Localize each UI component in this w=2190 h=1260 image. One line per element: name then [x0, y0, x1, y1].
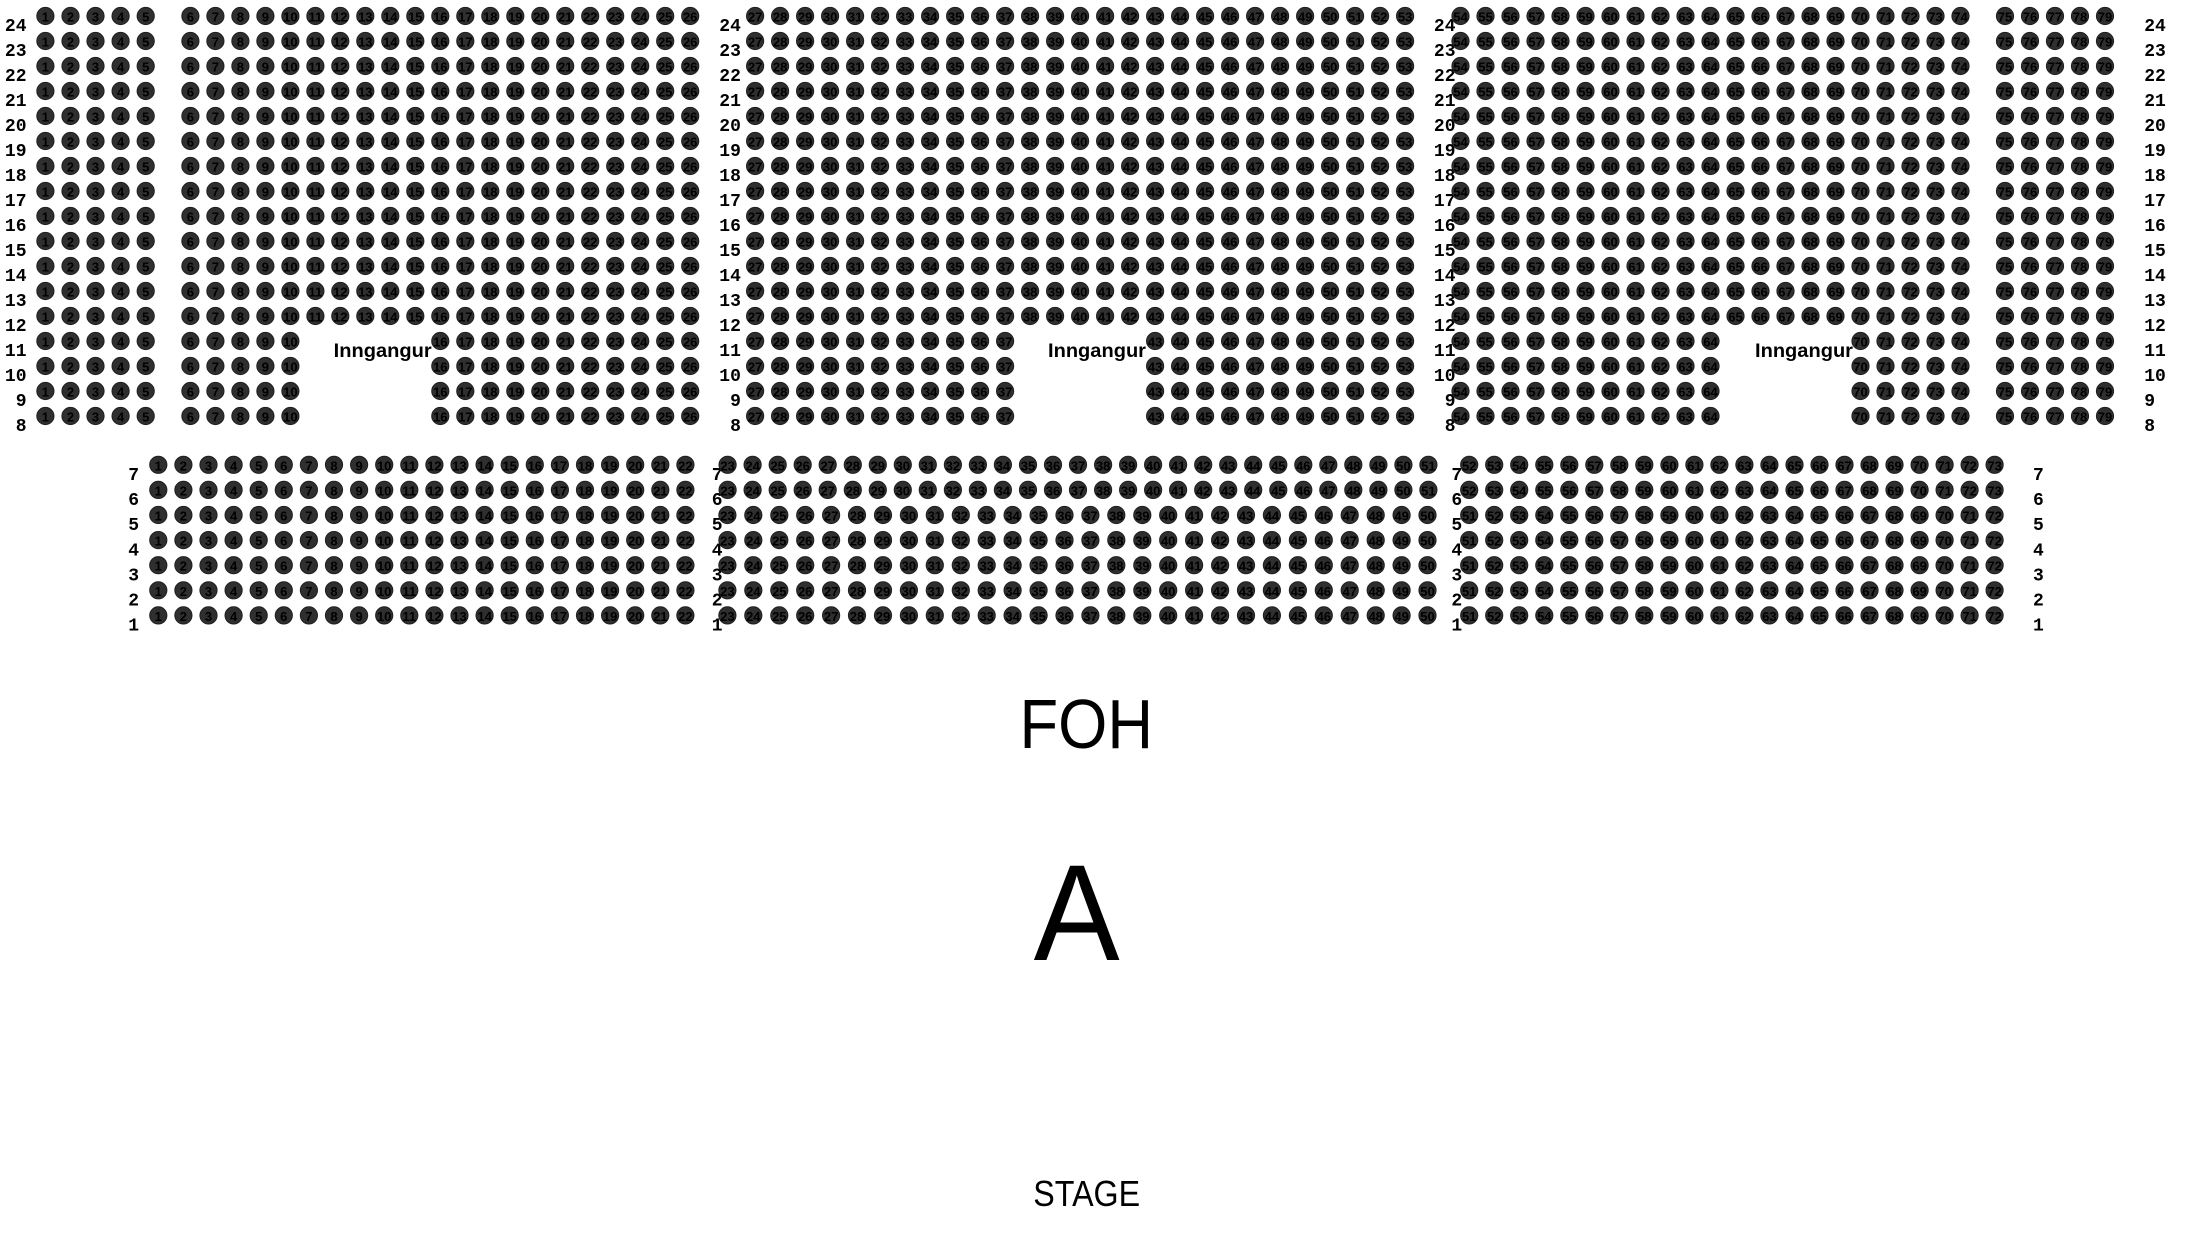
svg-text:3: 3	[92, 210, 99, 225]
svg-text:78: 78	[2073, 260, 2087, 275]
svg-text:33: 33	[971, 483, 985, 498]
svg-text:1: 1	[155, 509, 162, 524]
svg-text:25: 25	[658, 360, 672, 375]
svg-text:70: 70	[1853, 235, 1867, 250]
svg-text:71: 71	[1878, 385, 1892, 400]
svg-text:78: 78	[2073, 35, 2087, 50]
svg-text:6: 6	[280, 458, 287, 473]
svg-text:38: 38	[1023, 60, 1037, 75]
svg-text:17: 17	[458, 260, 472, 275]
svg-text:62: 62	[1653, 385, 1667, 400]
svg-text:51: 51	[1421, 458, 1435, 473]
svg-text:45: 45	[1198, 135, 1212, 150]
svg-text:72: 72	[1962, 483, 1976, 498]
svg-text:31: 31	[848, 235, 862, 250]
svg-text:15: 15	[502, 559, 516, 574]
svg-text:25: 25	[772, 584, 786, 599]
svg-text:20: 20	[533, 35, 547, 50]
svg-text:12: 12	[427, 483, 441, 498]
svg-text:31: 31	[928, 509, 942, 524]
svg-text:67: 67	[1837, 458, 1851, 473]
svg-text:28: 28	[773, 235, 787, 250]
svg-text:54: 54	[1453, 185, 1468, 200]
svg-text:13: 13	[358, 260, 372, 275]
svg-text:12: 12	[333, 185, 347, 200]
svg-text:56: 56	[1503, 160, 1517, 175]
svg-text:79: 79	[2098, 285, 2112, 300]
svg-text:14: 14	[477, 559, 492, 574]
svg-text:60: 60	[1687, 609, 1701, 624]
svg-text:6: 6	[187, 85, 194, 100]
svg-text:48: 48	[1273, 310, 1287, 325]
svg-text:30: 30	[823, 10, 837, 25]
svg-text:41: 41	[1098, 85, 1112, 100]
svg-text:72: 72	[1903, 335, 1917, 350]
svg-text:75: 75	[1998, 60, 2012, 75]
svg-text:40: 40	[1161, 559, 1175, 574]
svg-text:51: 51	[1348, 410, 1362, 425]
svg-text:76: 76	[2023, 10, 2037, 25]
svg-text:28: 28	[773, 110, 787, 125]
svg-text:37: 37	[998, 360, 1012, 375]
svg-text:47: 47	[1248, 10, 1262, 25]
svg-text:64: 64	[1787, 609, 1802, 624]
svg-text:54: 54	[1453, 360, 1468, 375]
svg-text:45: 45	[1198, 335, 1212, 350]
svg-text:59: 59	[1578, 10, 1592, 25]
svg-text:43: 43	[1148, 360, 1162, 375]
svg-text:13: 13	[452, 559, 466, 574]
svg-text:38: 38	[1023, 35, 1037, 50]
svg-text:3: 3	[92, 260, 99, 275]
svg-text:5: 5	[128, 516, 139, 536]
svg-text:62: 62	[1653, 185, 1667, 200]
svg-text:53: 53	[1512, 584, 1526, 599]
svg-text:60: 60	[1603, 385, 1617, 400]
svg-text:75: 75	[1998, 285, 2012, 300]
svg-text:59: 59	[1578, 210, 1592, 225]
svg-text:15: 15	[408, 235, 422, 250]
svg-text:67: 67	[1778, 35, 1792, 50]
svg-text:7: 7	[212, 135, 219, 150]
svg-text:22: 22	[583, 85, 597, 100]
svg-text:66: 66	[1753, 60, 1767, 75]
svg-text:2: 2	[67, 335, 74, 350]
svg-text:64: 64	[1787, 584, 1802, 599]
svg-text:60: 60	[1603, 260, 1617, 275]
svg-text:24: 24	[745, 458, 760, 473]
svg-text:62: 62	[1653, 310, 1667, 325]
svg-text:70: 70	[1912, 458, 1926, 473]
svg-text:40: 40	[1073, 185, 1087, 200]
svg-text:52: 52	[1487, 609, 1501, 624]
svg-text:72: 72	[1903, 310, 1917, 325]
svg-text:55: 55	[1478, 310, 1492, 325]
svg-text:63: 63	[1678, 310, 1692, 325]
svg-text:37: 37	[998, 210, 1012, 225]
svg-text:16: 16	[719, 217, 741, 237]
svg-text:73: 73	[1987, 483, 2001, 498]
svg-text:46: 46	[1223, 360, 1237, 375]
svg-text:21: 21	[558, 85, 572, 100]
svg-text:68: 68	[1887, 609, 1901, 624]
svg-text:18: 18	[578, 534, 592, 549]
svg-text:5: 5	[142, 235, 149, 250]
svg-text:76: 76	[2023, 410, 2037, 425]
svg-text:50: 50	[1323, 260, 1337, 275]
svg-text:20: 20	[533, 310, 547, 325]
svg-text:68: 68	[1803, 10, 1817, 25]
svg-text:59: 59	[1578, 110, 1592, 125]
svg-text:20: 20	[533, 335, 547, 350]
svg-text:4: 4	[117, 60, 125, 75]
svg-text:68: 68	[1862, 458, 1876, 473]
svg-text:79: 79	[2098, 35, 2112, 50]
svg-text:50: 50	[1323, 10, 1337, 25]
svg-text:10: 10	[283, 210, 297, 225]
svg-text:29: 29	[798, 160, 812, 175]
svg-text:15: 15	[408, 285, 422, 300]
svg-text:39: 39	[1121, 483, 1135, 498]
svg-text:7: 7	[1451, 466, 1462, 486]
svg-text:15: 15	[502, 509, 516, 524]
svg-text:36: 36	[1057, 534, 1071, 549]
svg-text:37: 37	[998, 410, 1012, 425]
svg-text:22: 22	[678, 509, 692, 524]
svg-text:59: 59	[1578, 360, 1592, 375]
svg-text:51: 51	[1462, 559, 1476, 574]
svg-text:33: 33	[979, 609, 993, 624]
svg-text:63: 63	[1678, 60, 1692, 75]
svg-text:8: 8	[730, 417, 741, 437]
svg-text:22: 22	[583, 185, 597, 200]
svg-text:72: 72	[1903, 260, 1917, 275]
svg-text:70: 70	[1912, 483, 1926, 498]
svg-text:47: 47	[1248, 360, 1262, 375]
svg-text:71: 71	[1878, 310, 1892, 325]
svg-text:55: 55	[1478, 135, 1492, 150]
svg-text:63: 63	[1678, 210, 1692, 225]
svg-text:69: 69	[1828, 60, 1842, 75]
svg-text:27: 27	[824, 609, 838, 624]
svg-text:24: 24	[633, 310, 648, 325]
svg-text:10: 10	[283, 60, 297, 75]
svg-text:52: 52	[1373, 160, 1387, 175]
svg-text:22: 22	[583, 260, 597, 275]
svg-text:30: 30	[902, 509, 916, 524]
svg-text:34: 34	[923, 10, 938, 25]
svg-text:17: 17	[5, 192, 27, 212]
svg-text:25: 25	[772, 609, 786, 624]
svg-text:10: 10	[377, 509, 391, 524]
svg-text:72: 72	[1987, 559, 2001, 574]
svg-text:59: 59	[1578, 135, 1592, 150]
svg-text:52: 52	[1373, 335, 1387, 350]
svg-text:19: 19	[508, 260, 522, 275]
svg-text:11: 11	[402, 584, 416, 599]
svg-text:9: 9	[355, 584, 362, 599]
svg-text:56: 56	[1503, 360, 1517, 375]
svg-text:2: 2	[180, 483, 187, 498]
svg-text:38: 38	[1096, 483, 1110, 498]
svg-text:68: 68	[1803, 85, 1817, 100]
svg-text:17: 17	[458, 85, 472, 100]
svg-text:18: 18	[1434, 167, 1456, 187]
svg-text:3: 3	[205, 534, 212, 549]
svg-text:68: 68	[1887, 559, 1901, 574]
svg-text:20: 20	[533, 160, 547, 175]
svg-text:72: 72	[1903, 360, 1917, 375]
svg-text:55: 55	[1537, 483, 1551, 498]
svg-text:15: 15	[502, 584, 516, 599]
svg-text:52: 52	[1487, 509, 1501, 524]
svg-text:45: 45	[1198, 285, 1212, 300]
svg-text:17: 17	[458, 360, 472, 375]
svg-text:44: 44	[1265, 584, 1280, 599]
svg-text:37: 37	[1071, 458, 1085, 473]
svg-text:23: 23	[720, 534, 734, 549]
svg-text:71: 71	[1878, 185, 1892, 200]
svg-text:60: 60	[1603, 35, 1617, 50]
svg-text:54: 54	[1453, 410, 1468, 425]
svg-text:19: 19	[5, 142, 27, 162]
svg-text:69: 69	[1912, 509, 1926, 524]
svg-text:45: 45	[1198, 110, 1212, 125]
svg-text:26: 26	[683, 185, 697, 200]
svg-text:28: 28	[773, 310, 787, 325]
svg-text:55: 55	[1478, 60, 1492, 75]
svg-text:62: 62	[1653, 110, 1667, 125]
svg-text:58: 58	[1553, 410, 1567, 425]
svg-text:60: 60	[1603, 160, 1617, 175]
svg-text:28: 28	[773, 35, 787, 50]
svg-text:6: 6	[280, 559, 287, 574]
svg-text:26: 26	[683, 110, 697, 125]
svg-text:36: 36	[1046, 458, 1060, 473]
svg-text:71: 71	[1962, 509, 1976, 524]
svg-text:66: 66	[1753, 285, 1767, 300]
svg-text:40: 40	[1073, 285, 1087, 300]
svg-text:24: 24	[633, 185, 648, 200]
svg-text:14: 14	[383, 85, 398, 100]
svg-text:34: 34	[923, 410, 938, 425]
svg-text:55: 55	[1478, 10, 1492, 25]
svg-text:8: 8	[237, 385, 244, 400]
svg-text:8: 8	[16, 417, 27, 437]
svg-text:22: 22	[2144, 67, 2166, 87]
svg-text:71: 71	[1878, 85, 1892, 100]
svg-text:60: 60	[1687, 534, 1701, 549]
svg-text:55: 55	[1562, 609, 1576, 624]
svg-text:18: 18	[578, 458, 592, 473]
svg-text:8: 8	[237, 60, 244, 75]
svg-text:35: 35	[948, 360, 962, 375]
svg-text:58: 58	[1553, 310, 1567, 325]
svg-text:42: 42	[1123, 260, 1137, 275]
svg-text:52: 52	[1373, 260, 1387, 275]
svg-text:61: 61	[1628, 110, 1642, 125]
svg-text:32: 32	[873, 335, 887, 350]
svg-text:11: 11	[402, 509, 416, 524]
svg-text:54: 54	[1537, 609, 1552, 624]
svg-text:27: 27	[748, 410, 762, 425]
svg-text:35: 35	[948, 285, 962, 300]
svg-text:62: 62	[1653, 260, 1667, 275]
svg-text:16: 16	[528, 534, 542, 549]
svg-text:71: 71	[1937, 458, 1951, 473]
svg-text:57: 57	[1528, 335, 1542, 350]
svg-text:64: 64	[1703, 210, 1718, 225]
svg-text:16: 16	[433, 385, 447, 400]
svg-text:56: 56	[1503, 10, 1517, 25]
svg-text:75: 75	[1998, 260, 2012, 275]
svg-text:3: 3	[92, 385, 99, 400]
svg-text:16: 16	[433, 110, 447, 125]
svg-text:36: 36	[1057, 584, 1071, 599]
svg-text:19: 19	[603, 584, 617, 599]
svg-text:23: 23	[608, 260, 622, 275]
svg-text:69: 69	[1828, 135, 1842, 150]
svg-text:16: 16	[433, 360, 447, 375]
svg-text:9: 9	[355, 483, 362, 498]
svg-text:17: 17	[458, 60, 472, 75]
svg-text:21: 21	[2144, 92, 2166, 112]
svg-text:36: 36	[973, 285, 987, 300]
svg-text:54: 54	[1453, 310, 1468, 325]
svg-text:72: 72	[1903, 60, 1917, 75]
svg-text:21: 21	[558, 360, 572, 375]
svg-text:51: 51	[1348, 60, 1362, 75]
svg-text:53: 53	[1398, 60, 1412, 75]
svg-text:29: 29	[798, 360, 812, 375]
svg-text:61: 61	[1628, 210, 1642, 225]
svg-text:23: 23	[720, 509, 734, 524]
svg-text:64: 64	[1787, 559, 1802, 574]
svg-text:35: 35	[1021, 483, 1035, 498]
svg-text:11: 11	[309, 35, 323, 50]
svg-text:65: 65	[1787, 458, 1801, 473]
svg-text:64: 64	[1703, 110, 1718, 125]
svg-text:4: 4	[117, 310, 125, 325]
svg-text:69: 69	[1887, 483, 1901, 498]
svg-text:78: 78	[2073, 110, 2087, 125]
svg-text:57: 57	[1528, 360, 1542, 375]
svg-text:21: 21	[558, 385, 572, 400]
svg-text:14: 14	[383, 310, 398, 325]
svg-text:33: 33	[979, 584, 993, 599]
svg-text:33: 33	[898, 10, 912, 25]
svg-text:4: 4	[117, 160, 125, 175]
svg-text:30: 30	[902, 609, 916, 624]
svg-text:37: 37	[998, 110, 1012, 125]
svg-text:76: 76	[2023, 60, 2037, 75]
svg-text:6: 6	[187, 385, 194, 400]
svg-text:26: 26	[683, 60, 697, 75]
svg-text:72: 72	[1987, 534, 2001, 549]
svg-text:31: 31	[848, 10, 862, 25]
svg-text:26: 26	[795, 483, 809, 498]
svg-text:65: 65	[1812, 509, 1826, 524]
svg-text:73: 73	[1928, 410, 1942, 425]
svg-text:16: 16	[433, 210, 447, 225]
svg-text:70: 70	[1853, 335, 1867, 350]
svg-text:56: 56	[1503, 85, 1517, 100]
svg-text:24: 24	[746, 559, 761, 574]
svg-text:21: 21	[558, 185, 572, 200]
svg-text:57: 57	[1528, 410, 1542, 425]
svg-text:8: 8	[237, 110, 244, 125]
svg-text:29: 29	[798, 210, 812, 225]
svg-text:27: 27	[748, 235, 762, 250]
svg-text:71: 71	[1962, 584, 1976, 599]
svg-text:44: 44	[1173, 385, 1188, 400]
svg-text:47: 47	[1342, 534, 1356, 549]
svg-text:47: 47	[1248, 285, 1262, 300]
svg-text:42: 42	[1213, 534, 1227, 549]
svg-text:4: 4	[230, 509, 238, 524]
svg-text:45: 45	[1198, 360, 1212, 375]
svg-text:5: 5	[142, 85, 149, 100]
svg-text:52: 52	[1373, 235, 1387, 250]
svg-text:53: 53	[1398, 160, 1412, 175]
svg-text:38: 38	[1109, 559, 1123, 574]
svg-text:20: 20	[628, 483, 642, 498]
svg-text:47: 47	[1248, 85, 1262, 100]
svg-text:43: 43	[1148, 185, 1162, 200]
svg-text:53: 53	[1398, 410, 1412, 425]
svg-text:1: 1	[155, 584, 162, 599]
svg-text:32: 32	[954, 534, 968, 549]
svg-text:45: 45	[1291, 559, 1305, 574]
svg-text:50: 50	[1420, 509, 1434, 524]
svg-text:21: 21	[5, 92, 27, 112]
svg-text:44: 44	[1173, 135, 1188, 150]
svg-text:56: 56	[1503, 410, 1517, 425]
svg-text:52: 52	[1373, 185, 1387, 200]
svg-text:36: 36	[973, 135, 987, 150]
svg-text:58: 58	[1553, 60, 1567, 75]
svg-text:26: 26	[683, 385, 697, 400]
svg-text:72: 72	[1903, 185, 1917, 200]
svg-text:23: 23	[608, 85, 622, 100]
svg-text:59: 59	[1578, 85, 1592, 100]
svg-text:3: 3	[205, 609, 212, 624]
svg-text:61: 61	[1687, 483, 1701, 498]
svg-text:22: 22	[5, 67, 27, 87]
svg-text:17: 17	[553, 534, 567, 549]
svg-text:65: 65	[1812, 534, 1826, 549]
svg-text:79: 79	[2098, 260, 2112, 275]
svg-text:5: 5	[1451, 516, 1462, 536]
svg-text:54: 54	[1453, 110, 1468, 125]
svg-text:24: 24	[633, 335, 648, 350]
svg-text:59: 59	[1662, 609, 1676, 624]
svg-text:62: 62	[1653, 235, 1667, 250]
svg-text:9: 9	[355, 534, 362, 549]
svg-text:4: 4	[117, 110, 125, 125]
svg-text:8: 8	[237, 335, 244, 350]
svg-text:43: 43	[1148, 285, 1162, 300]
svg-text:33: 33	[898, 135, 912, 150]
svg-text:2: 2	[67, 385, 74, 400]
svg-text:76: 76	[2023, 185, 2037, 200]
svg-text:2: 2	[180, 534, 187, 549]
svg-text:16: 16	[433, 260, 447, 275]
svg-text:33: 33	[898, 210, 912, 225]
svg-text:18: 18	[483, 260, 497, 275]
svg-text:49: 49	[1298, 410, 1312, 425]
svg-text:10: 10	[5, 367, 27, 387]
